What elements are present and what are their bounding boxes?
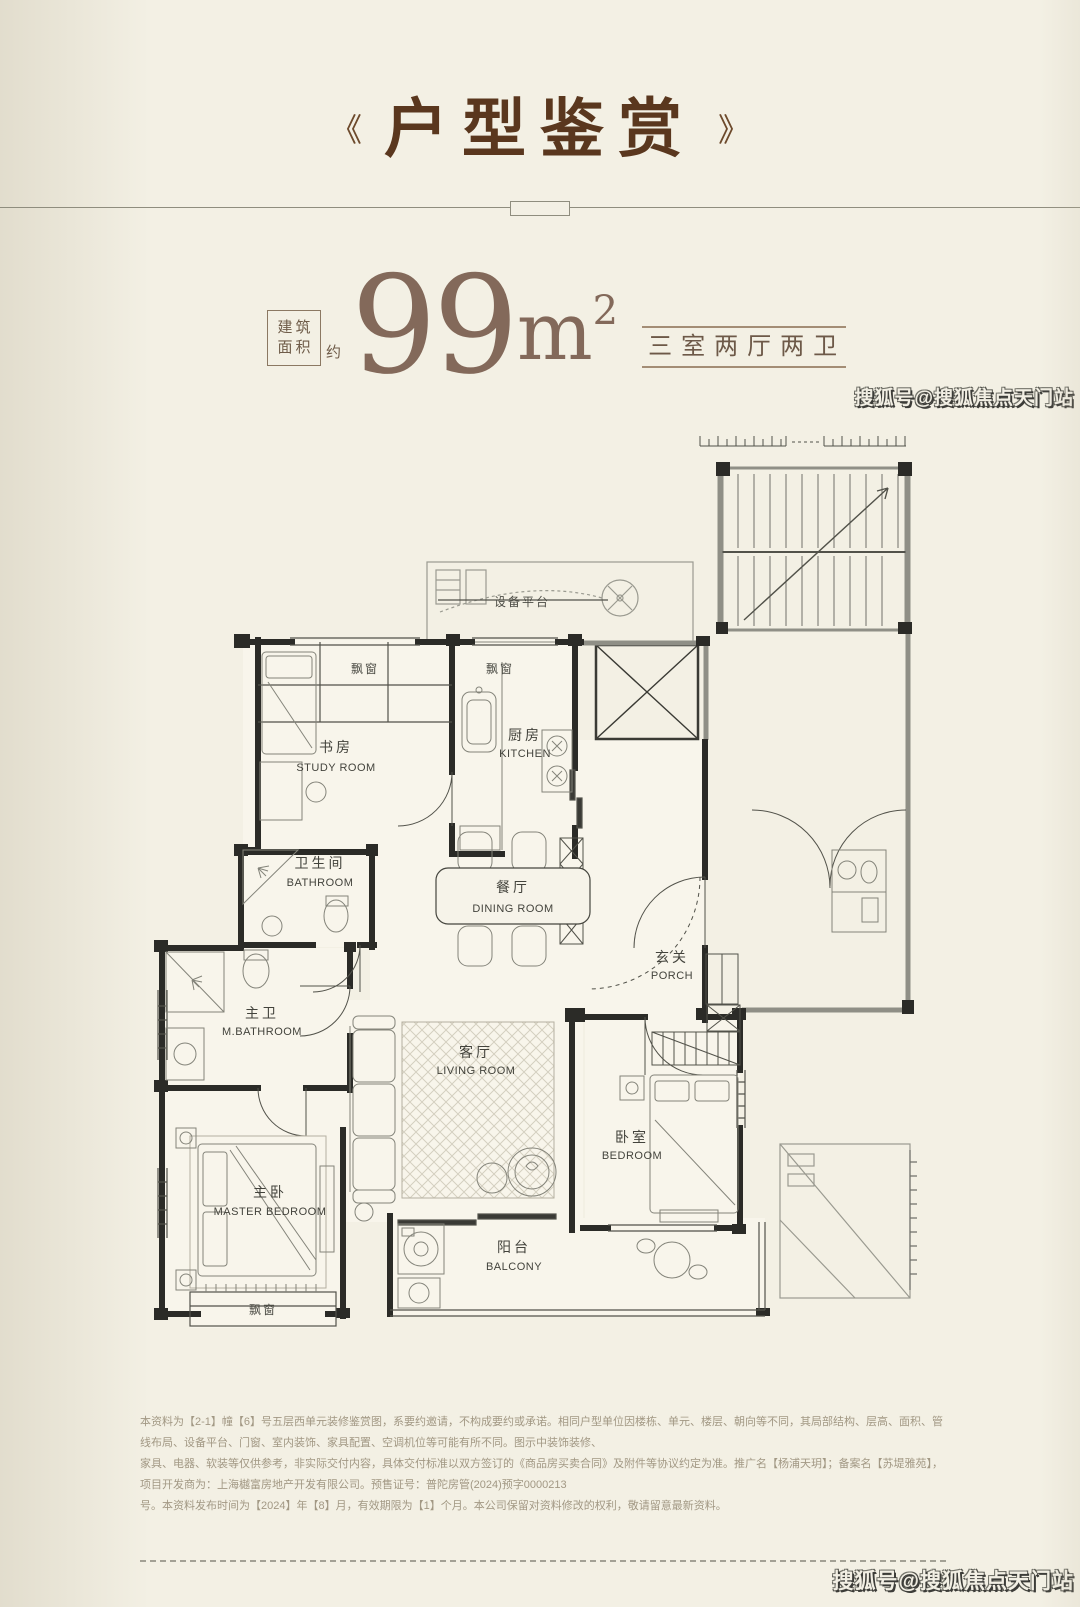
title-right-bracket: 》: [718, 114, 750, 146]
room-label-living-cn: 客厅: [459, 1044, 493, 1060]
title-left-bracket: 《: [330, 114, 362, 146]
dimension-marks: [700, 436, 906, 446]
divider-center-box: [510, 201, 570, 216]
room-label-dining-en: DINING ROOM: [472, 903, 553, 915]
bay-window-label-kitchen: 飘窗: [486, 662, 514, 676]
room-label-kitchen-en: KITCHEN: [499, 748, 551, 760]
elevator-shaft: [596, 645, 698, 739]
floor-plan: 设备平台 飘窗 飘窗 飘窗 书房 STUDY ROOM 厨房 KITCHEN 卫…: [140, 430, 940, 1340]
room-label-master-bath-cn: 主卫: [245, 1005, 279, 1021]
disclaimer-line-2: 家具、电器、软装等仅供参考，非实际交付内容，具体交付标准以双方签订的《商品房买卖…: [140, 1454, 944, 1496]
area-unit: m: [517, 292, 593, 372]
room-label-living-en: LIVING ROOM: [437, 1065, 516, 1077]
title-divider: [0, 207, 1080, 208]
room-label-master-bath-en: M.BATHROOM: [222, 1026, 302, 1038]
room-label-balcony-en: BALCONY: [486, 1261, 542, 1273]
stairwell: [722, 468, 906, 630]
approx-label: 约: [326, 341, 341, 362]
area-value: 99: [351, 280, 515, 372]
page-header: 《 户型鉴赏 》: [0, 88, 1080, 172]
headline: 建筑 面积 约 99 m 2 三室两厅两卫: [267, 288, 846, 372]
area-label-line1: 建筑: [274, 318, 313, 338]
watermark-bottom: 搜狐号@搜狐焦点天门站: [833, 1565, 1074, 1595]
room-label-study-en: STUDY ROOM: [296, 762, 375, 774]
bay-window-label-master: 飘窗: [249, 1303, 277, 1317]
disclaimer-line-1: 本资料为【2-1】幢【6】号五层西单元装修鉴赏图，系要约邀请，不构成要约或承诺。…: [140, 1412, 944, 1454]
room-label-bedroom-cn: 卧室: [615, 1129, 649, 1145]
room-label-bathroom-cn: 卫生间: [295, 855, 346, 871]
room-label-study-cn: 书房: [319, 739, 353, 755]
bottom-dashed-divider: [140, 1560, 946, 1562]
page-title: 户型鉴赏: [384, 88, 696, 172]
room-label-bedroom-en: BEDROOM: [602, 1150, 662, 1162]
room-label-dining-cn: 餐厅: [496, 879, 530, 895]
bay-window-label-study: 飘窗: [351, 662, 379, 676]
room-label-balcony-cn: 阳台: [497, 1239, 531, 1255]
ac-platform: [780, 1144, 917, 1298]
area-label-box: 建筑 面积: [267, 310, 321, 366]
corridor-fixtures: [832, 850, 886, 932]
equipment-platform: [427, 562, 693, 642]
dining-table: [436, 868, 590, 924]
watermark-top: 搜狐号@搜狐焦点天门站: [854, 383, 1074, 410]
room-label-porch-en: PORCH: [651, 970, 693, 982]
area-superscript: 2: [593, 288, 618, 334]
layout-summary: 三室两厅两卫: [642, 326, 846, 368]
room-label-bathroom-en: BATHROOM: [287, 877, 354, 889]
disclaimer: 本资料为【2-1】幢【6】号五层西单元装修鉴赏图，系要约邀请，不构成要约或承诺。…: [140, 1412, 944, 1517]
page: 《 户型鉴赏 》 建筑 面积 约 99 m 2 三室两厅两卫 搜狐号@搜狐焦点天…: [0, 0, 1080, 1607]
room-label-kitchen-cn: 厨房: [508, 727, 542, 743]
equipment-platform-label: 设备平台: [494, 594, 550, 609]
area-label-line2: 面积: [274, 338, 313, 358]
disclaimer-line-3: 号。本资料发布时间为【2024】年【8】月，有效期限为【1】个月。本公司保留对资…: [140, 1496, 944, 1517]
room-label-master-cn: 主卧: [253, 1184, 287, 1200]
room-label-master-en: MASTER BEDROOM: [214, 1206, 327, 1218]
room-label-porch-cn: 玄关: [655, 949, 689, 965]
